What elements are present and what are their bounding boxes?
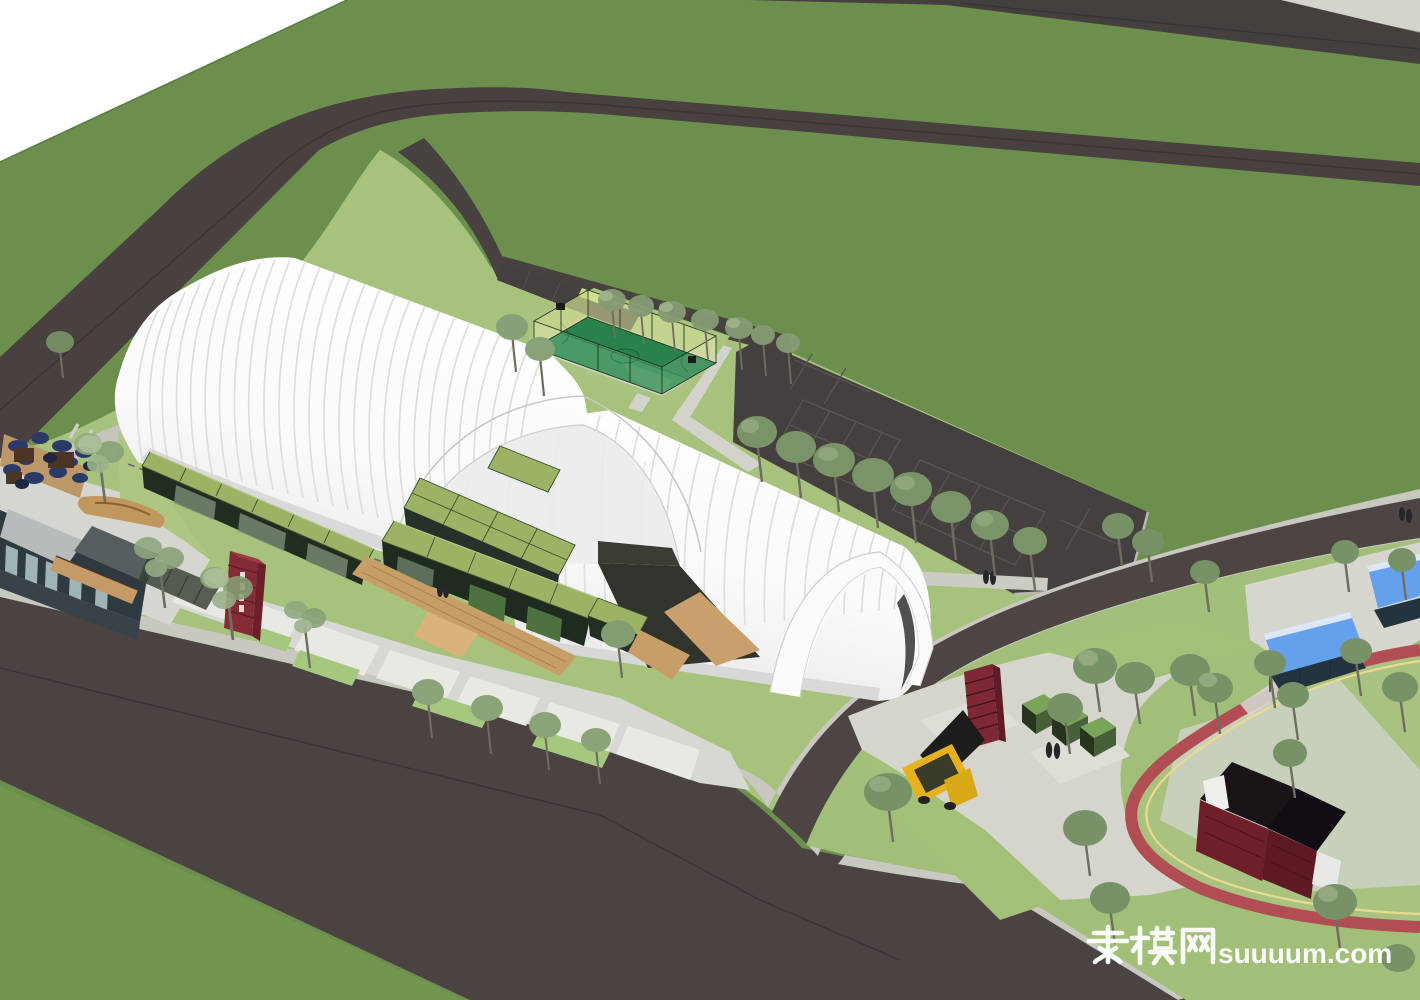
svg-text:suuuum.com: suuuum.com	[1218, 938, 1392, 969]
